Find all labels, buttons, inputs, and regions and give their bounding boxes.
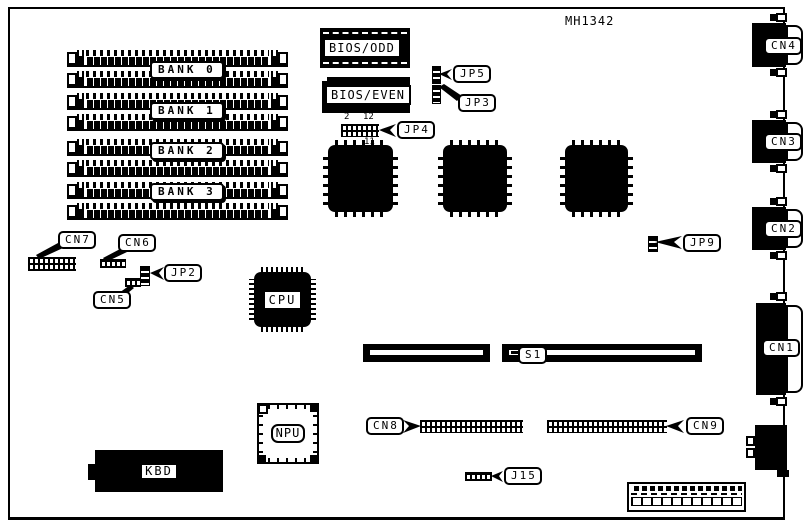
label-bank-2: BANK 2 xyxy=(150,142,224,160)
label-s1: S1 xyxy=(518,346,547,364)
label-jp4: JP4 xyxy=(397,121,435,139)
j15-arrow xyxy=(491,471,503,482)
cn9-arrow xyxy=(666,420,684,433)
label-jp5: JP5 xyxy=(453,65,491,83)
label-cn6: CN6 xyxy=(118,234,156,252)
jp5-arrow xyxy=(439,69,452,80)
label-cn5: CN5 xyxy=(93,291,131,309)
callout-arrows xyxy=(0,0,807,527)
label-cn9: CN9 xyxy=(686,417,724,435)
label-jp2: JP2 xyxy=(164,264,202,282)
jp4-pin-12: 12 xyxy=(363,113,374,122)
label-cn8: CN8 xyxy=(366,417,404,435)
label-jp3: JP3 xyxy=(458,94,496,112)
label-j15: J15 xyxy=(504,467,542,485)
motherboard-diagram: MH1342 BANK 0 BANK 1 BANK 2 BANK 3 BIOS/… xyxy=(0,0,807,527)
jp4-pin-11: 11 xyxy=(364,138,375,147)
jp9-arrow xyxy=(655,236,682,249)
jp4-arrow xyxy=(379,124,396,137)
label-bank-1: BANK 1 xyxy=(150,102,224,120)
label-bank-0: BANK 0 xyxy=(150,61,224,79)
cn8-arrow xyxy=(403,420,421,433)
label-bank-3: BANK 3 xyxy=(150,183,224,201)
label-jp9: JP9 xyxy=(683,234,721,252)
jp2-arrow xyxy=(150,267,164,280)
jp4-pin-2: 2 xyxy=(344,113,349,122)
label-cn7: CN7 xyxy=(58,231,96,249)
